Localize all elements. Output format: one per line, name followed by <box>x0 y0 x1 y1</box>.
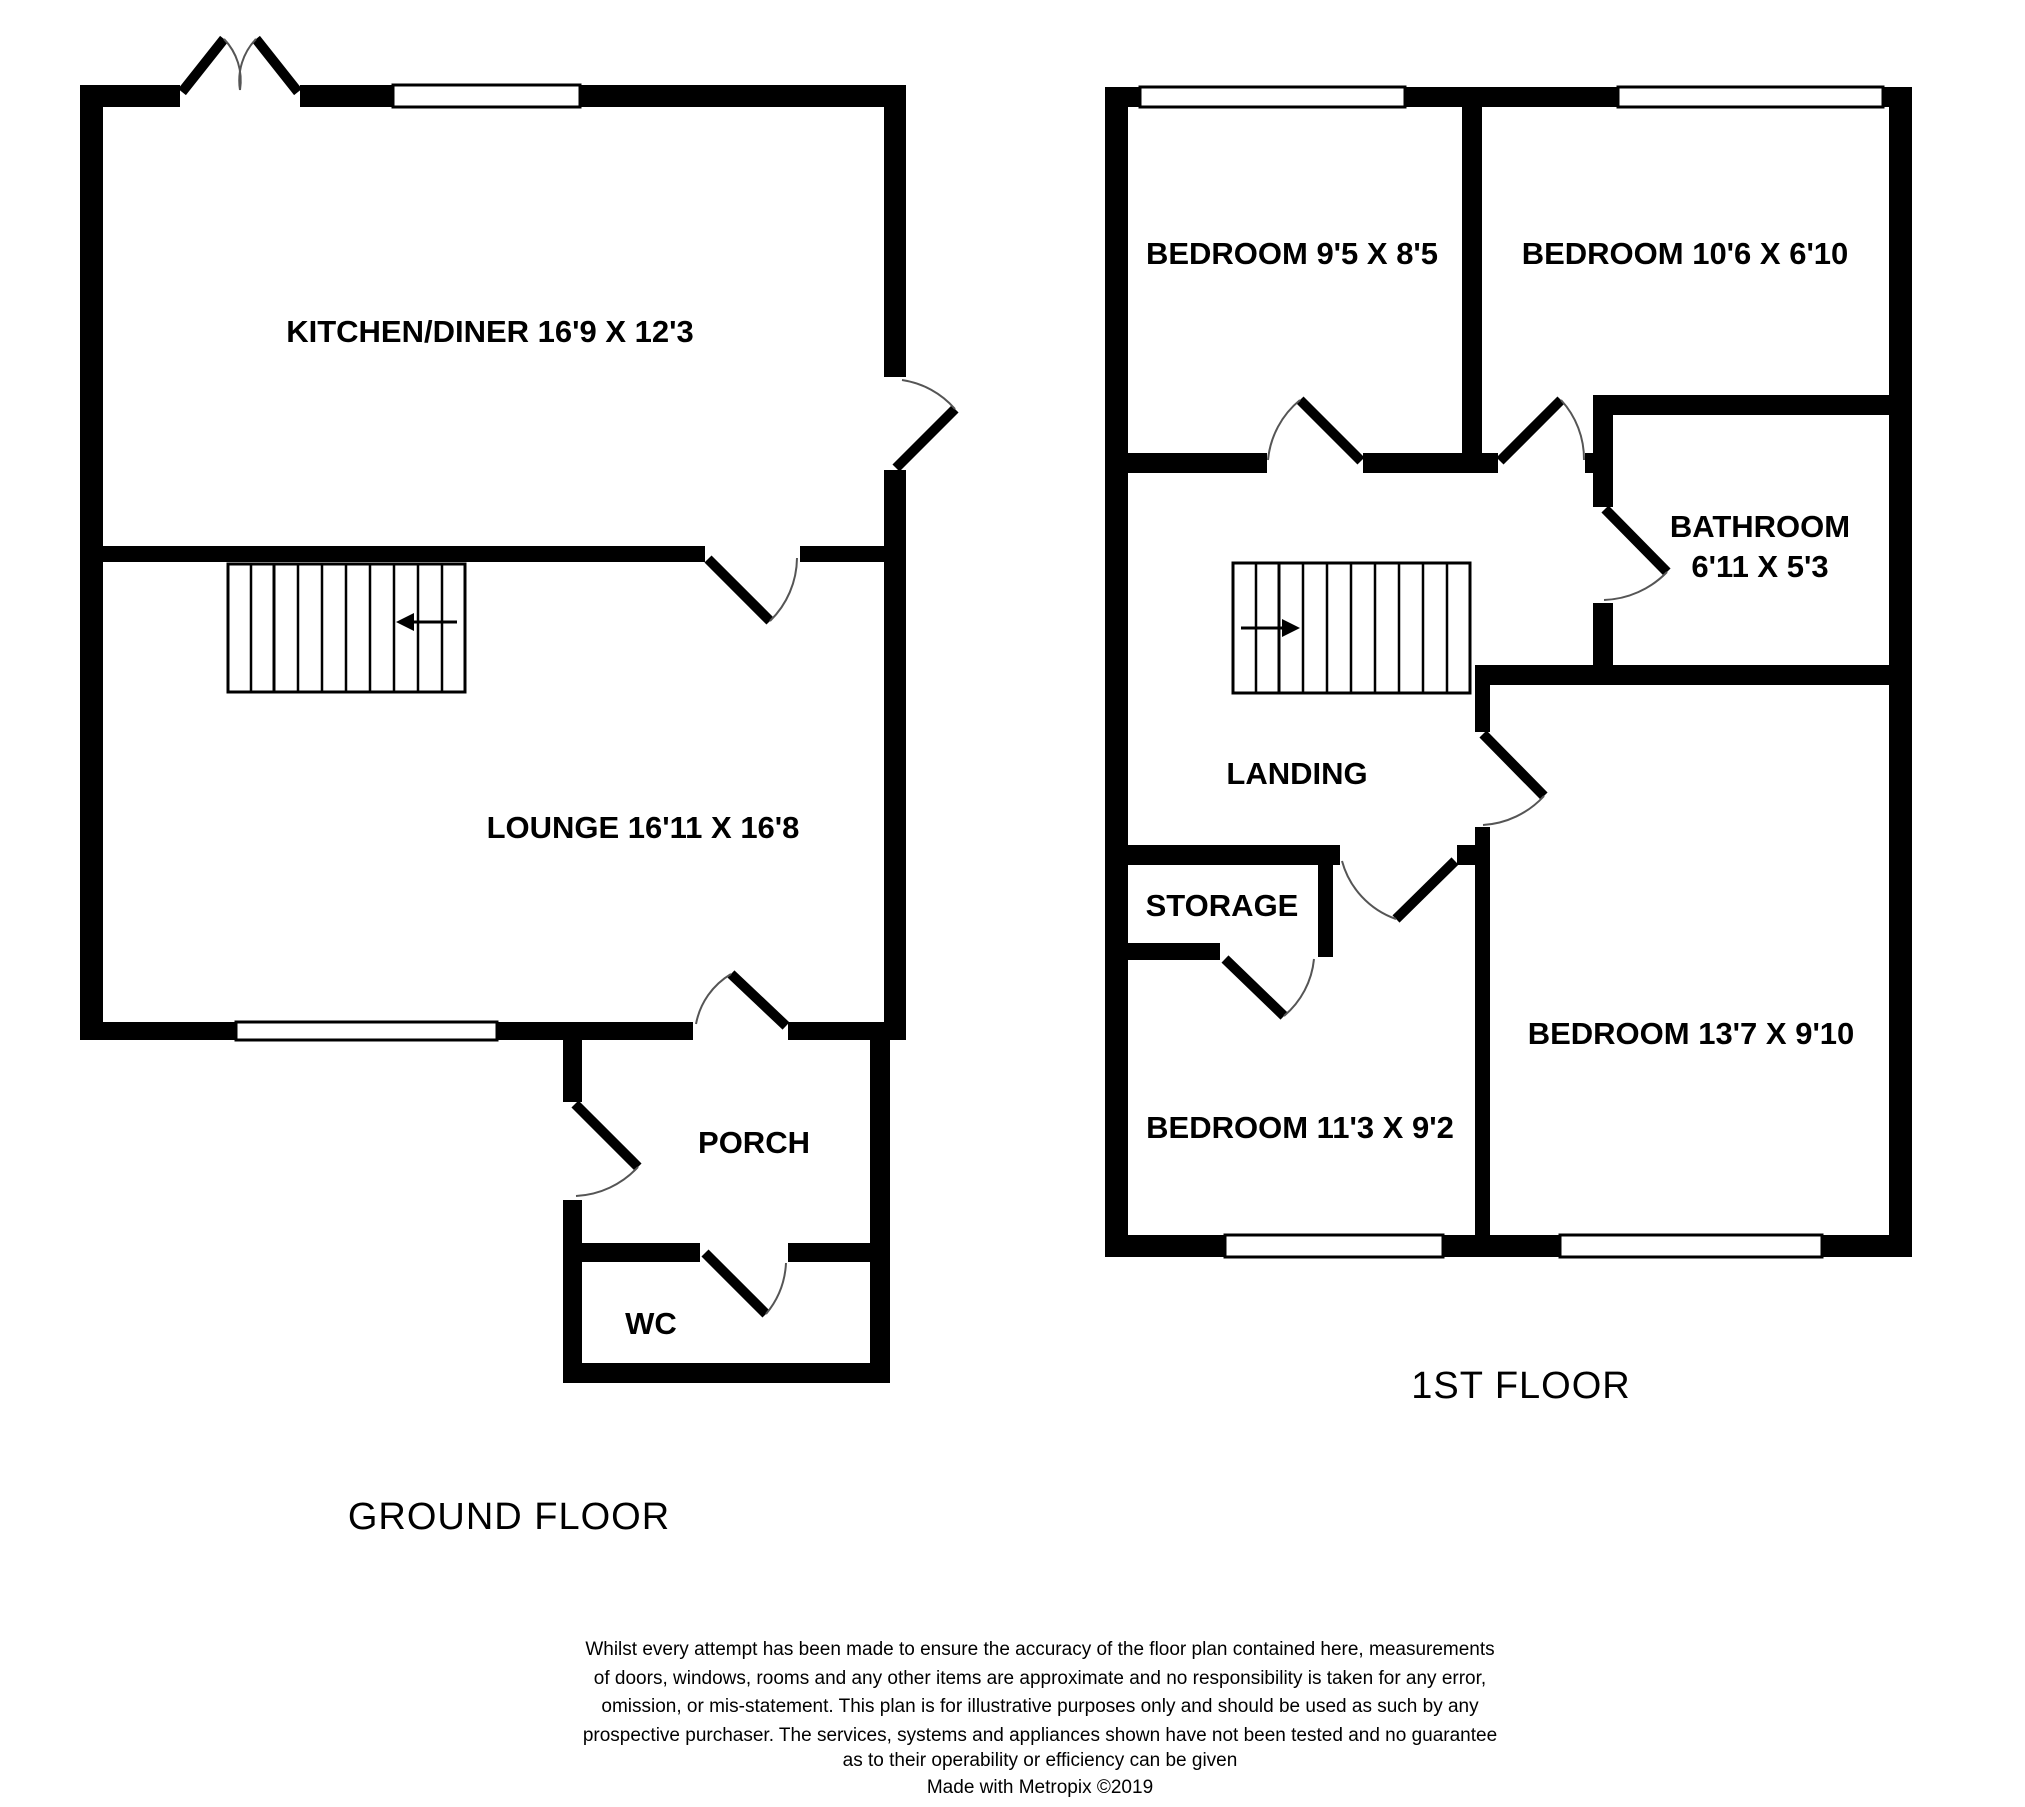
wall-segment <box>563 1040 582 1102</box>
wall-segment <box>884 85 906 377</box>
door-leaf <box>1500 400 1561 461</box>
wall-segment <box>300 85 393 107</box>
door-leaf <box>705 1253 766 1314</box>
wall-segment <box>1475 665 1890 685</box>
door-arc <box>576 1167 638 1196</box>
door-arc <box>1561 400 1584 460</box>
door-leaf <box>256 39 298 92</box>
window <box>1560 1235 1822 1257</box>
wall-segment <box>1128 943 1220 960</box>
window <box>1140 87 1405 107</box>
door-bedroom-2 <box>1500 400 1584 461</box>
wall-segment <box>1405 87 1618 107</box>
first-floor-caption: 1ST FLOOR <box>1411 1365 1630 1407</box>
door-leaf <box>1300 400 1361 461</box>
disclaimer-line: of doors, windows, rooms and any other i… <box>594 1668 1486 1689</box>
door-leaf <box>1483 734 1544 796</box>
wall-segment <box>1889 87 1912 1257</box>
door-arc <box>239 39 256 90</box>
bedroom-4-label: BEDROOM 13'7 X 9'10 <box>1528 1016 1855 1051</box>
lounge-label: LOUNGE 16'11 X 16'8 <box>487 810 800 845</box>
ground-floor-caption: GROUND FLOOR <box>348 1496 670 1538</box>
wall-segment <box>497 1022 693 1040</box>
door-arc <box>1604 572 1667 600</box>
door-bedroom-4 <box>1483 734 1544 825</box>
window <box>1618 87 1883 107</box>
landing-label: LANDING <box>1226 756 1367 791</box>
wall-segment <box>1593 395 1890 415</box>
wall-segment <box>1822 1235 1912 1257</box>
ground-floor-plan: KITCHEN/DINER 16'9 X 12'3 LOUNGE 16'11 X… <box>80 39 955 1538</box>
storage-label: STORAGE <box>1146 888 1299 923</box>
door-leaf <box>896 409 955 468</box>
wall-segment <box>563 1243 700 1262</box>
wall-segment <box>80 1022 236 1040</box>
door-leaf <box>1225 959 1284 1016</box>
disclaimer-block: Whilst every attempt has been made to en… <box>583 1639 1497 1798</box>
door-leaf <box>1605 509 1667 572</box>
door-bathroom <box>1604 509 1667 600</box>
window <box>1225 1235 1443 1257</box>
door-arc <box>766 1263 786 1314</box>
wall-segment <box>1105 87 1140 107</box>
floorplan-drawing: KITCHEN/DINER 16'9 X 12'3 LOUNGE 16'11 X… <box>0 0 2025 1807</box>
wall-segment <box>870 1040 890 1383</box>
wall-segment <box>884 470 906 1040</box>
window <box>393 85 580 107</box>
wall-segment <box>1105 1235 1225 1257</box>
wall-segment <box>80 85 180 107</box>
door-lounge-porch <box>696 974 786 1026</box>
wall-segment <box>563 1200 582 1383</box>
wall-segment <box>1593 395 1613 507</box>
bedroom-2-label: BEDROOM 10'6 X 6'10 <box>1522 236 1849 271</box>
wall-segment <box>1475 827 1490 1235</box>
wall-segment <box>1482 453 1498 473</box>
bathroom-size-label: 6'11 X 5'3 <box>1691 549 1828 584</box>
bedroom-3-label: BEDROOM 11'3 X 9'2 <box>1146 1110 1454 1145</box>
disclaimer-line: prospective purchaser. The services, sys… <box>583 1725 1497 1746</box>
door-leaf <box>731 974 786 1026</box>
door-arc <box>1483 796 1544 825</box>
wall-segment <box>563 1363 890 1383</box>
door-arc <box>902 380 955 409</box>
door-arc <box>1284 959 1314 1016</box>
made-with-metropix-line: Made with Metropix ©2019 <box>927 1777 1153 1798</box>
wall-segment <box>1443 1235 1560 1257</box>
wall-segment <box>1363 453 1462 473</box>
door-bedroom-1 <box>1268 400 1361 461</box>
wall-segment <box>1128 845 1340 865</box>
door-kitchen-lounge <box>708 558 797 621</box>
wall-segment <box>1128 453 1267 473</box>
first-floor-plan: BEDROOM 9'5 X 8'5 BEDROOM 10'6 X 6'10 BA… <box>1105 87 1912 1407</box>
door-front <box>575 1104 638 1196</box>
stairs-ground <box>228 564 465 692</box>
wall-segment <box>800 546 884 562</box>
door-leaf <box>182 39 224 92</box>
wall-segment <box>80 85 103 1040</box>
wall-segment <box>580 85 906 107</box>
wall-segment <box>1318 865 1333 957</box>
wc-label: WC <box>625 1306 677 1341</box>
disclaimer-line: Whilst every attempt has been made to en… <box>585 1639 1494 1660</box>
door-wc <box>705 1253 786 1314</box>
wall-segment <box>1457 845 1475 865</box>
wall-segment <box>103 546 705 562</box>
window <box>236 1022 497 1040</box>
wall-segment <box>1475 685 1490 732</box>
door-kitchen-back <box>896 380 955 468</box>
porch-label: PORCH <box>698 1125 810 1160</box>
bathroom-label: BATHROOM <box>1670 509 1850 544</box>
door-arc <box>770 558 797 621</box>
kitchen-diner-label: KITCHEN/DINER 16'9 X 12'3 <box>286 314 694 349</box>
wall-segment <box>788 1022 906 1040</box>
door-arc <box>696 974 731 1024</box>
bedroom-1-label: BEDROOM 9'5 X 8'5 <box>1146 236 1438 271</box>
door-bedroom-3 <box>1342 861 1455 919</box>
disclaimer-line: as to their operability or efficiency ca… <box>843 1750 1238 1771</box>
door-leaf <box>575 1104 638 1167</box>
door-arc <box>1342 861 1396 919</box>
door-storage <box>1225 959 1314 1016</box>
disclaimer-line: omission, or mis-statement. This plan is… <box>601 1696 1479 1717</box>
floorplan-page: KITCHEN/DINER 16'9 X 12'3 LOUNGE 16'11 X… <box>0 0 2025 1807</box>
door-leaf <box>708 559 770 621</box>
stairs-first-floor <box>1233 563 1470 693</box>
wall-segment <box>1105 87 1128 1257</box>
door-arc <box>1268 400 1300 460</box>
door-leaf <box>1396 861 1455 919</box>
french-door <box>182 39 298 92</box>
door-arc <box>224 39 241 90</box>
wall-segment <box>1462 107 1482 473</box>
